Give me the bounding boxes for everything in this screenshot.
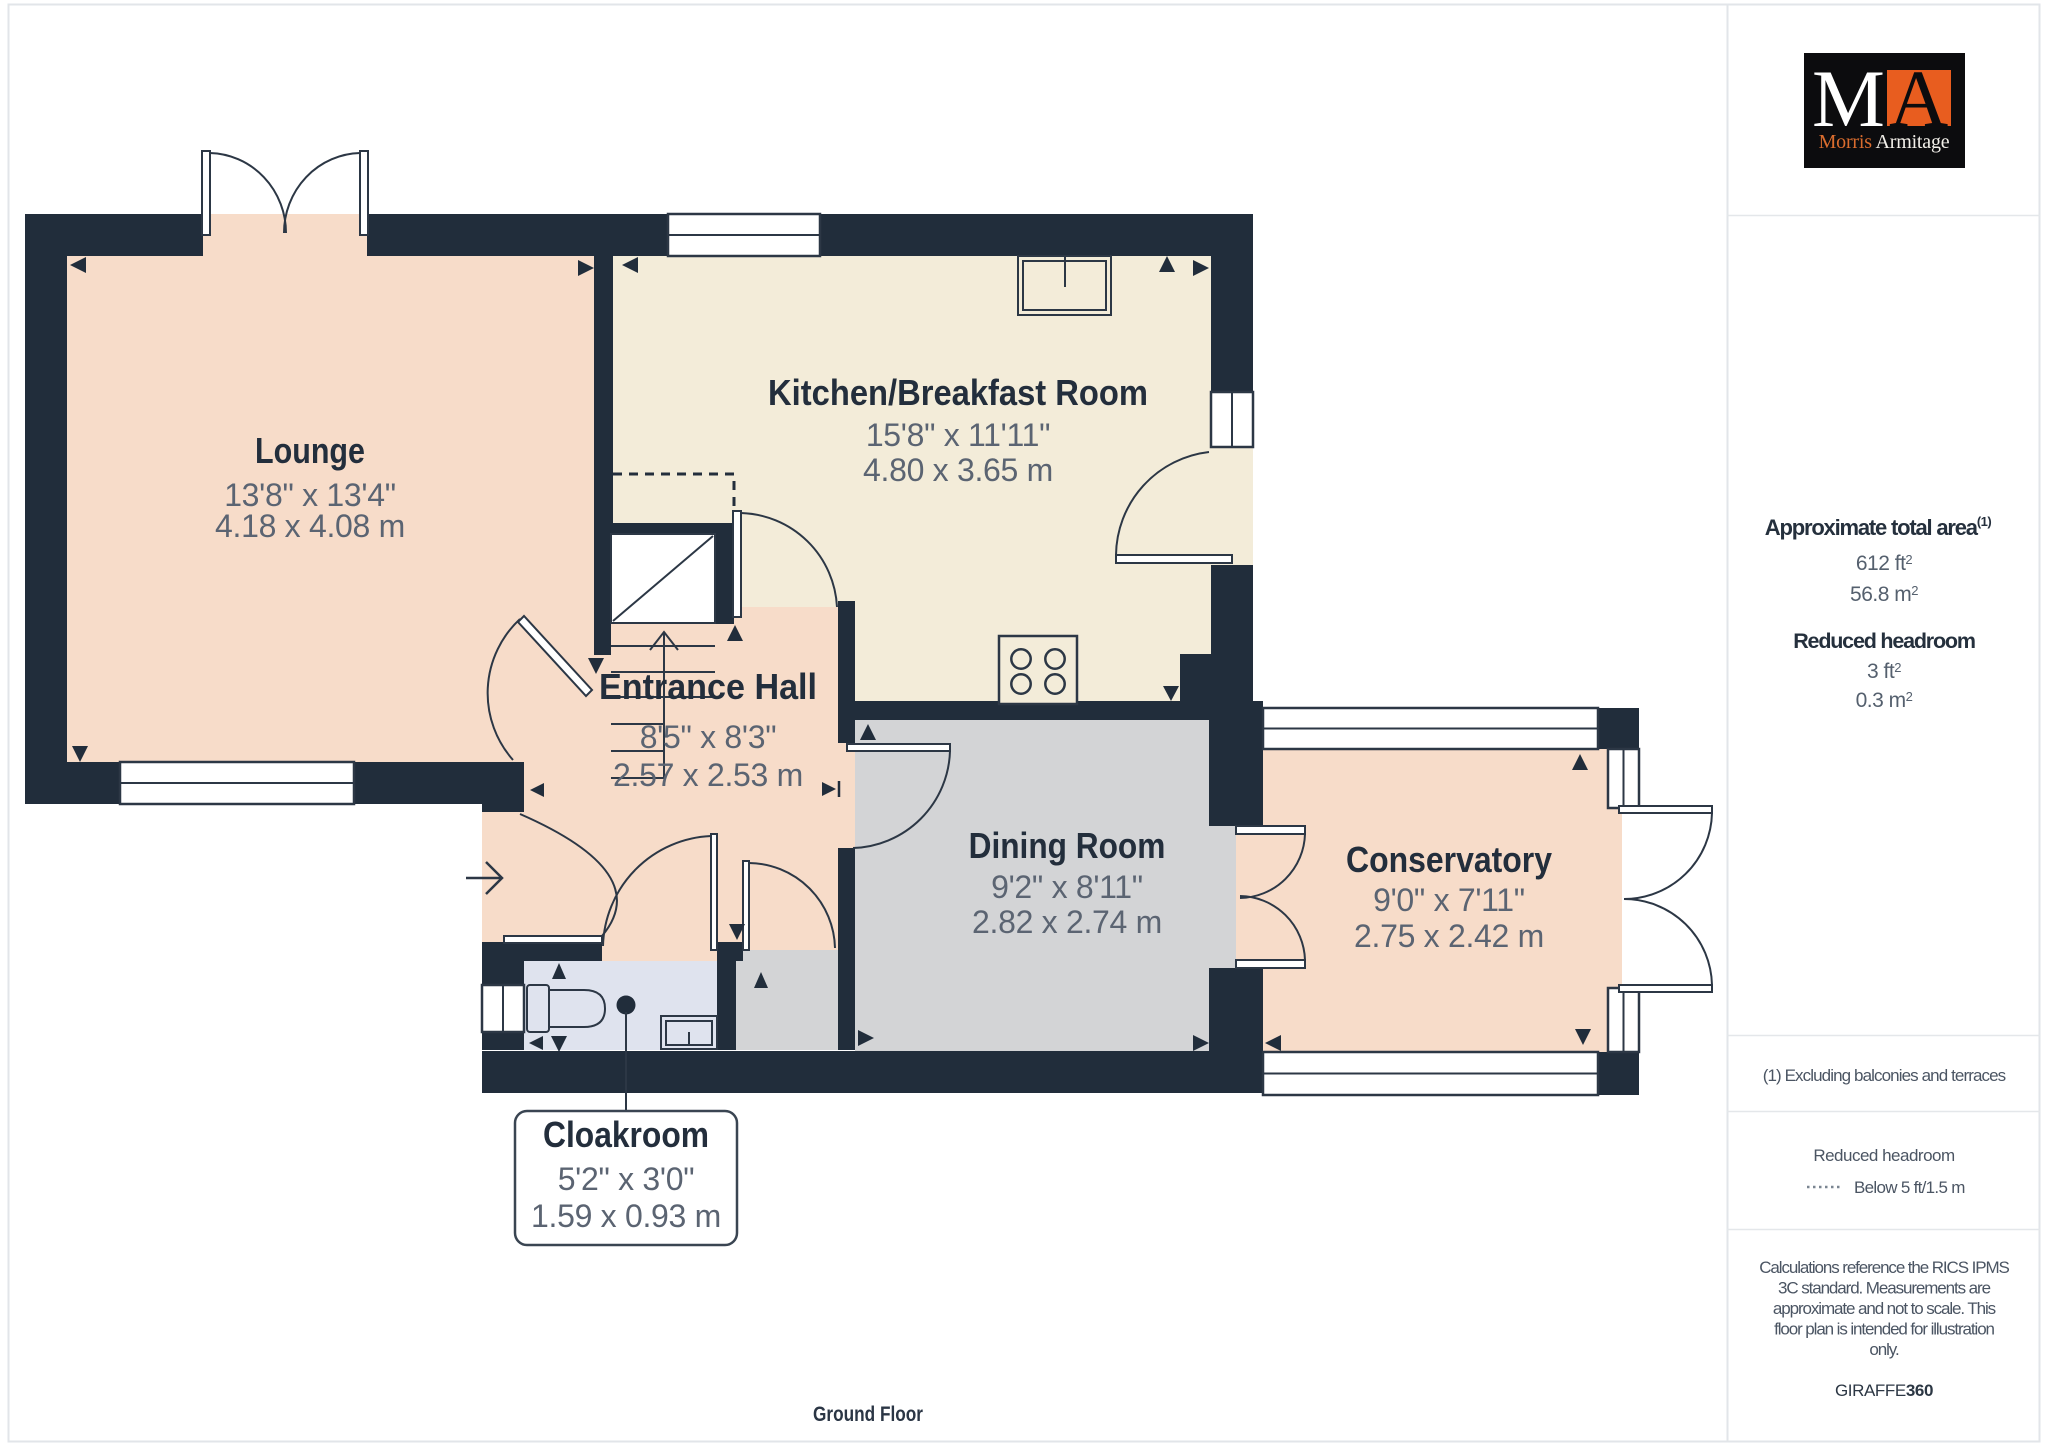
svg-text:Cloakroom: Cloakroom bbox=[543, 1115, 709, 1155]
svg-text:Reduced headroom: Reduced headroom bbox=[1793, 629, 1975, 653]
svg-text:0.3 m2: 0.3 m2 bbox=[1856, 689, 1913, 712]
svg-text:Dining Room: Dining Room bbox=[969, 826, 1166, 866]
svg-text:approximate and not to scale.: approximate and not to scale. This bbox=[1773, 1299, 1996, 1318]
svg-text:1.59 x 0.93 m: 1.59 x 0.93 m bbox=[531, 1198, 721, 1234]
svg-text:Morris Armitage: Morris Armitage bbox=[1819, 131, 1950, 153]
svg-text:15'8" x 11'11": 15'8" x 11'11" bbox=[866, 417, 1050, 453]
svg-text:Calculations reference the RIC: Calculations reference the RICS IPMS bbox=[1759, 1258, 2009, 1277]
svg-text:Ground Floor: Ground Floor bbox=[813, 1404, 923, 1427]
svg-text:Kitchen/Breakfast Room: Kitchen/Breakfast Room bbox=[768, 374, 1148, 414]
svg-text:9'2" x 8'11": 9'2" x 8'11" bbox=[991, 869, 1143, 905]
svg-text:4.80 x 3.65 m: 4.80 x 3.65 m bbox=[863, 452, 1053, 488]
svg-text:GIRAFFE360: GIRAFFE360 bbox=[1835, 1381, 1933, 1400]
svg-text:Entrance Hall: Entrance Hall bbox=[599, 667, 817, 707]
svg-text:56.8 m2: 56.8 m2 bbox=[1850, 583, 1918, 606]
svg-text:Lounge: Lounge bbox=[255, 432, 365, 472]
svg-text:Conservatory: Conservatory bbox=[1346, 840, 1552, 880]
svg-text:floor plan is intended for ill: floor plan is intended for illustration bbox=[1774, 1320, 1994, 1339]
svg-text:2.57 x 2.53 m: 2.57 x 2.53 m bbox=[613, 757, 803, 793]
svg-text:Below 5 ft/1.5 m: Below 5 ft/1.5 m bbox=[1854, 1178, 1965, 1197]
svg-text:2.75 x 2.42 m: 2.75 x 2.42 m bbox=[1354, 918, 1544, 954]
svg-text:Approximate total area(1): Approximate total area(1) bbox=[1765, 514, 1992, 540]
svg-text:612 ft2: 612 ft2 bbox=[1856, 552, 1913, 575]
svg-text:Reduced headroom: Reduced headroom bbox=[1813, 1146, 1955, 1165]
svg-text:3C standard. Measurements are: 3C standard. Measurements are bbox=[1778, 1279, 1991, 1298]
svg-text:8'5" x 8'3": 8'5" x 8'3" bbox=[640, 719, 777, 755]
svg-text:(1) Excluding balconies and te: (1) Excluding balconies and terraces bbox=[1763, 1066, 2006, 1085]
svg-text:2.82 x 2.74 m: 2.82 x 2.74 m bbox=[972, 904, 1162, 940]
svg-text:only.: only. bbox=[1869, 1340, 1899, 1359]
svg-text:5'2" x 3'0": 5'2" x 3'0" bbox=[558, 1161, 695, 1197]
svg-text:4.18 x 4.08 m: 4.18 x 4.08 m bbox=[215, 508, 405, 544]
svg-text:9'0" x 7'11": 9'0" x 7'11" bbox=[1373, 882, 1525, 918]
